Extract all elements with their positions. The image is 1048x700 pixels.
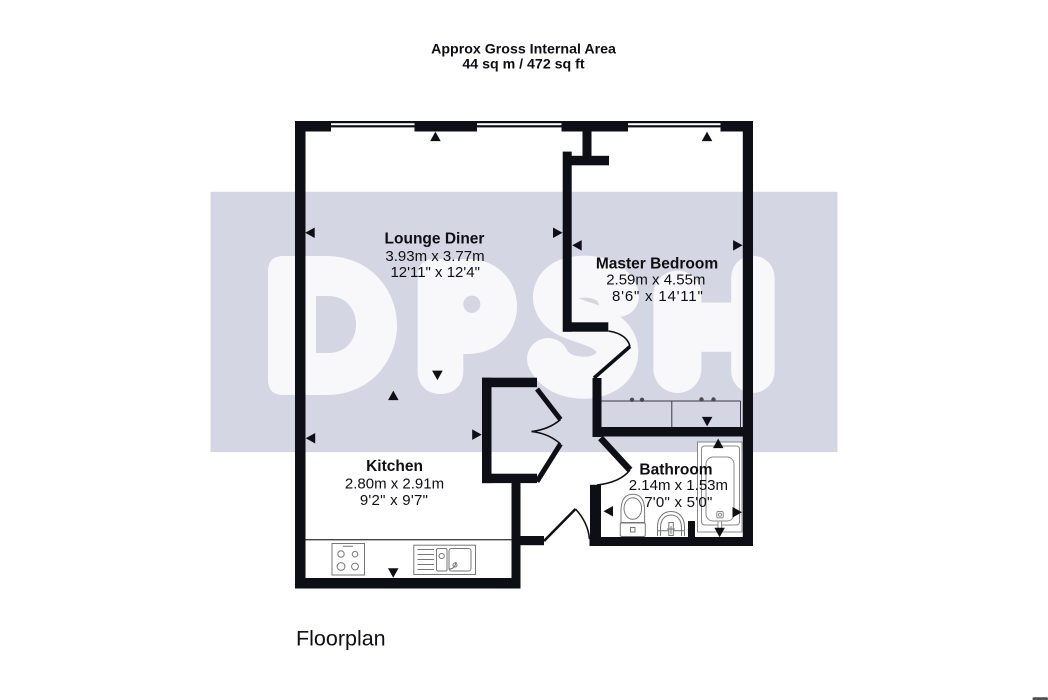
svg-text:3.93m x 3.77m: 3.93m x 3.77m	[385, 248, 484, 265]
svg-text:2.80m x 2.91m: 2.80m x 2.91m	[345, 476, 444, 493]
svg-text:9'2" x 9'7": 9'2" x 9'7"	[360, 492, 428, 509]
svg-text:8'6" x 14'11": 8'6" x 14'11"	[612, 288, 704, 305]
svg-text:Lounge Diner: Lounge Diner	[385, 231, 485, 248]
svg-text:12'11" x 12'4": 12'11" x 12'4"	[390, 264, 480, 281]
svg-text:7'0" x 5'0": 7'0" x 5'0"	[644, 494, 712, 511]
svg-text:44 sq m / 472 sq ft: 44 sq m / 472 sq ft	[462, 56, 584, 72]
svg-text:2.14m x 1.53m: 2.14m x 1.53m	[629, 477, 728, 494]
svg-text:Kitchen: Kitchen	[366, 458, 423, 475]
svg-text:2.59m x 4.55m: 2.59m x 4.55m	[606, 272, 705, 289]
svg-text:Bathroom: Bathroom	[639, 462, 712, 479]
svg-text:Approx Gross Internal Area: Approx Gross Internal Area	[431, 41, 616, 57]
svg-text:Master Bedroom: Master Bedroom	[596, 255, 718, 272]
svg-text:Floorplan: Floorplan	[296, 627, 386, 651]
